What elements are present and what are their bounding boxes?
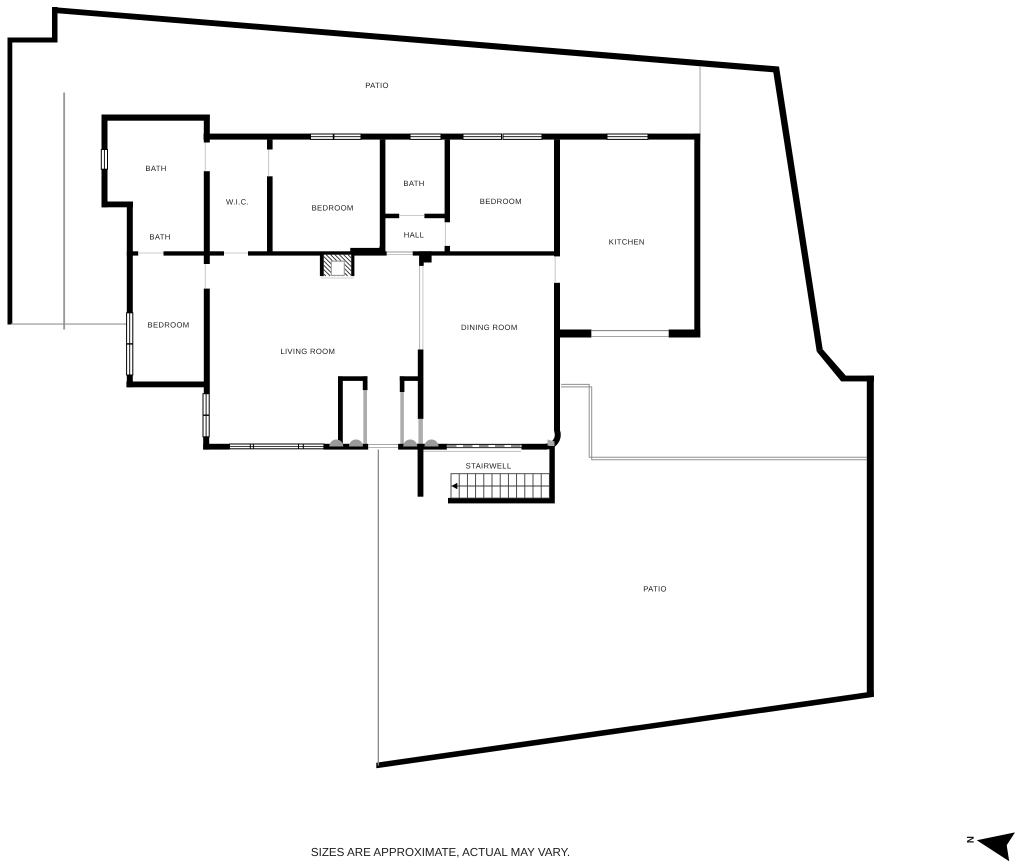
svg-text:STAIRWELL: STAIRWELL bbox=[466, 461, 512, 470]
svg-text:SIZES ARE APPROXIMATE, ACTUAL: SIZES ARE APPROXIMATE, ACTUAL MAY VARY. bbox=[311, 846, 570, 859]
svg-text:BATH: BATH bbox=[149, 232, 170, 241]
svg-text:KITCHEN: KITCHEN bbox=[609, 237, 645, 246]
svg-text:BATH: BATH bbox=[403, 179, 424, 188]
svg-text:PATIO: PATIO bbox=[365, 81, 389, 90]
svg-text:BATH: BATH bbox=[145, 164, 166, 173]
svg-text:DINING ROOM: DINING ROOM bbox=[461, 323, 518, 332]
svg-text:BEDROOM: BEDROOM bbox=[480, 197, 522, 206]
svg-text:N: N bbox=[964, 836, 975, 843]
svg-text:LIVING ROOM: LIVING ROOM bbox=[280, 347, 335, 356]
svg-text:BEDROOM: BEDROOM bbox=[312, 203, 354, 212]
svg-text:W.I.C.: W.I.C. bbox=[226, 198, 249, 207]
svg-text:PATIO: PATIO bbox=[643, 584, 667, 593]
svg-text:HALL: HALL bbox=[404, 231, 425, 240]
svg-text:BEDROOM: BEDROOM bbox=[147, 320, 189, 329]
